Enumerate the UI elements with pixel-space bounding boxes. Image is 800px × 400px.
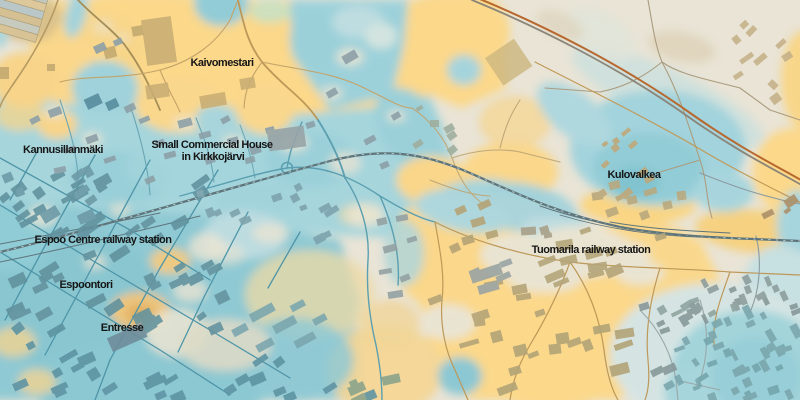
svg-text:in Kirkkojärvi: in Kirkkojärvi [182, 151, 245, 163]
svg-text:Entresse: Entresse [101, 322, 144, 334]
svg-text:Kannusillanmäki: Kannusillanmäki [23, 144, 103, 156]
svg-text:Tuomarila railway station: Tuomarila railway station [532, 244, 652, 256]
svg-text:Espoontori: Espoontori [59, 279, 112, 291]
svg-text:Small Commercial House: Small Commercial House [151, 139, 272, 151]
svg-text:Espoo Centre railway station: Espoo Centre railway station [35, 234, 173, 246]
svg-text:Kulovalkea: Kulovalkea [607, 169, 661, 181]
svg-text:Kaivomestari: Kaivomestari [190, 57, 254, 69]
